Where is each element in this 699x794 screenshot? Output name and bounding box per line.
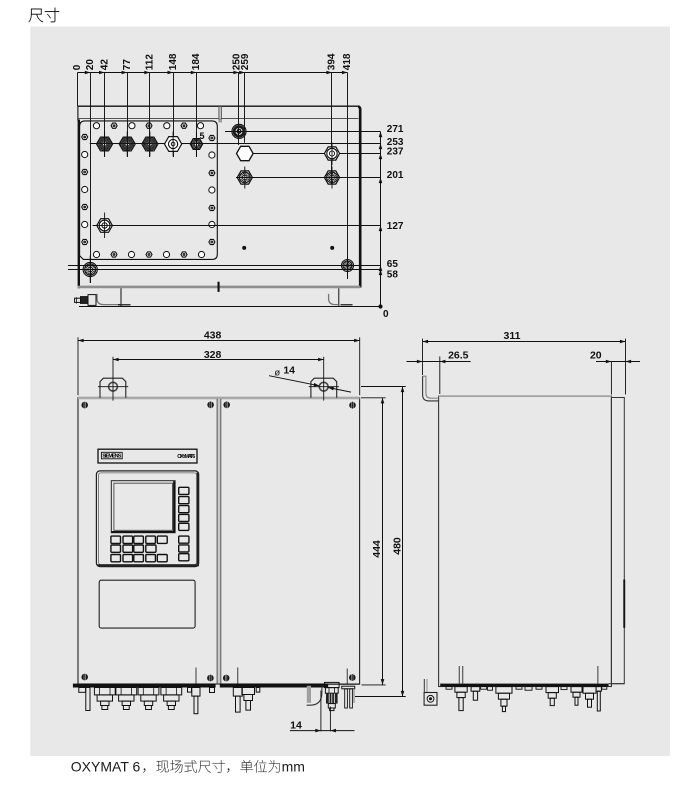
svg-text:237: 237 bbox=[387, 146, 404, 157]
svg-text:438: 438 bbox=[204, 329, 222, 341]
svg-text:20: 20 bbox=[590, 349, 602, 361]
svg-text:5: 5 bbox=[199, 131, 204, 141]
svg-text:mm: mm bbox=[282, 759, 305, 775]
svg-text:311: 311 bbox=[504, 330, 521, 342]
svg-text:394: 394 bbox=[327, 53, 338, 70]
svg-text:259: 259 bbox=[240, 53, 251, 70]
svg-text:77: 77 bbox=[122, 59, 133, 71]
svg-text:42: 42 bbox=[99, 59, 110, 71]
svg-text:26.5: 26.5 bbox=[448, 349, 469, 361]
svg-text:184: 184 bbox=[191, 53, 202, 70]
svg-text:SIEMENS: SIEMENS bbox=[102, 454, 121, 460]
svg-text:271: 271 bbox=[387, 124, 404, 135]
svg-text:0: 0 bbox=[383, 309, 389, 320]
svg-text:148: 148 bbox=[168, 53, 179, 70]
svg-text:58: 58 bbox=[387, 269, 399, 280]
svg-text:328: 328 bbox=[204, 349, 222, 361]
svg-text:418: 418 bbox=[342, 53, 353, 70]
svg-text:444: 444 bbox=[371, 540, 383, 558]
svg-text:127: 127 bbox=[387, 221, 404, 232]
svg-text:201: 201 bbox=[387, 170, 404, 181]
svg-text:OXYMAT 6: OXYMAT 6 bbox=[177, 454, 195, 460]
svg-text:20: 20 bbox=[85, 59, 96, 71]
svg-text:OXYMAT 6: OXYMAT 6 bbox=[71, 759, 141, 775]
svg-text:0: 0 bbox=[72, 64, 83, 70]
svg-text:14: 14 bbox=[290, 719, 302, 731]
svg-text:480: 480 bbox=[391, 537, 403, 555]
svg-text:14: 14 bbox=[283, 365, 295, 377]
svg-text:112: 112 bbox=[145, 54, 156, 71]
